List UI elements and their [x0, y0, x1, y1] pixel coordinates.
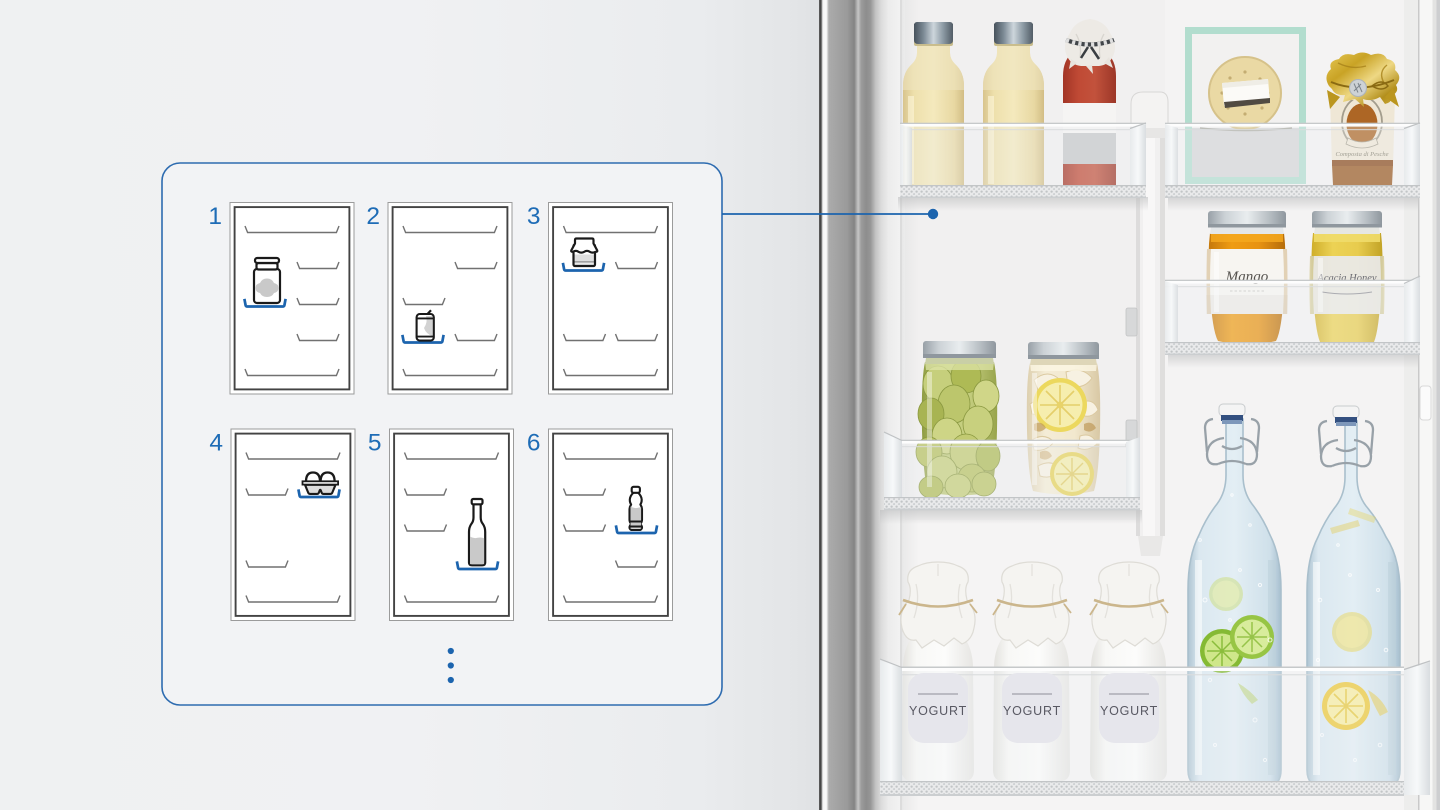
- svg-text:2: 2: [366, 203, 380, 230]
- svg-text:5: 5: [368, 430, 382, 457]
- svg-text:4: 4: [209, 430, 223, 457]
- svg-text:YOGURT: YOGURT: [909, 704, 967, 718]
- svg-text:1: 1: [208, 203, 222, 230]
- svg-text:YOGURT: YOGURT: [1100, 704, 1158, 718]
- svg-text:3: 3: [527, 203, 541, 230]
- svg-text:YOGURT: YOGURT: [1003, 704, 1061, 718]
- svg-text:6: 6: [527, 430, 541, 457]
